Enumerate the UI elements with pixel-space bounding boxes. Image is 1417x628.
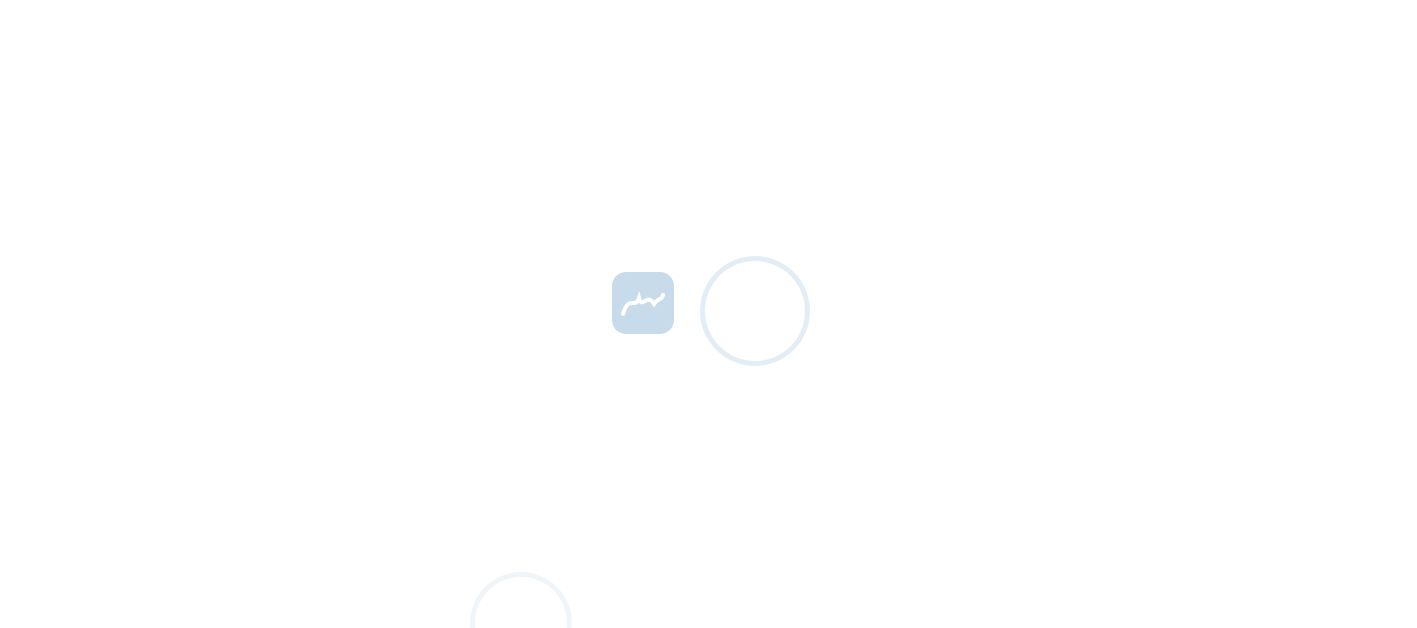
floorplan-drawing <box>0 0 1417 628</box>
cad-viewer <box>0 0 1417 628</box>
